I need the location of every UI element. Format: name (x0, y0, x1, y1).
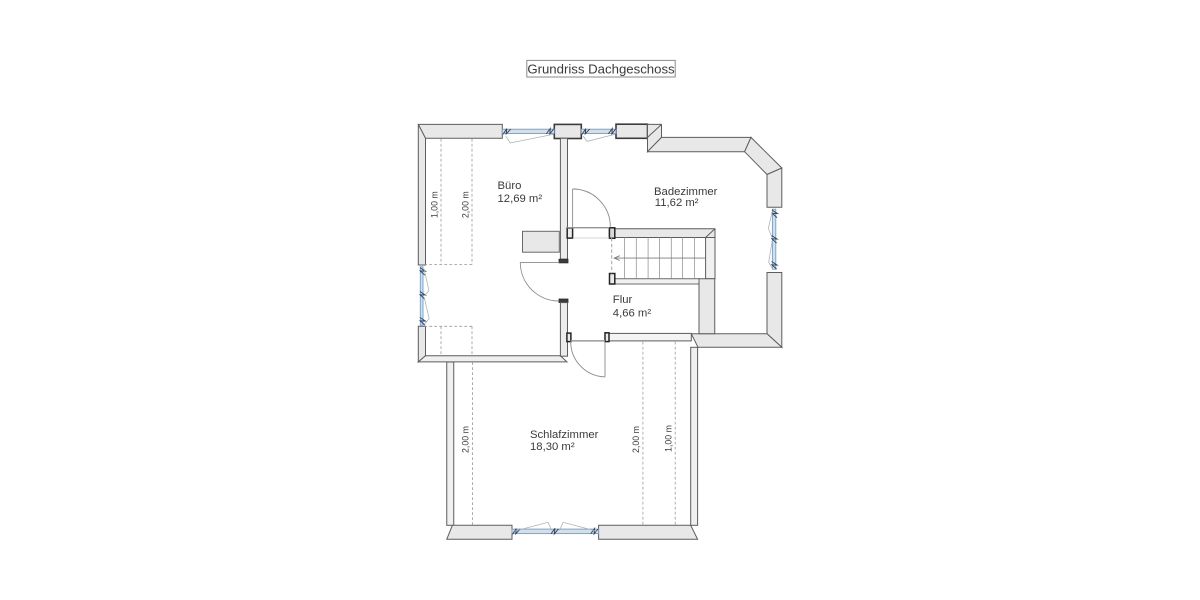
svg-text:18,30 m²: 18,30 m² (530, 441, 575, 453)
svg-text:12,69 m²: 12,69 m² (498, 193, 543, 205)
svg-text:2,00 m: 2,00 m (631, 426, 641, 453)
svg-text:4,66 m²: 4,66 m² (613, 308, 652, 320)
svg-text:2,00 m: 2,00 m (461, 426, 471, 453)
svg-text:Büro: Büro (498, 180, 522, 192)
svg-text:1,00 m: 1,00 m (429, 191, 439, 218)
svg-text:Grundriss Dachgeschoss: Grundriss Dachgeschoss (527, 62, 675, 77)
svg-text:Flur: Flur (613, 294, 633, 306)
svg-text:Schlafzimmer: Schlafzimmer (530, 429, 599, 441)
svg-text:1,00 m: 1,00 m (664, 425, 674, 452)
svg-text:2,00 m: 2,00 m (460, 191, 470, 218)
svg-text:11,62 m²: 11,62 m² (655, 197, 699, 209)
